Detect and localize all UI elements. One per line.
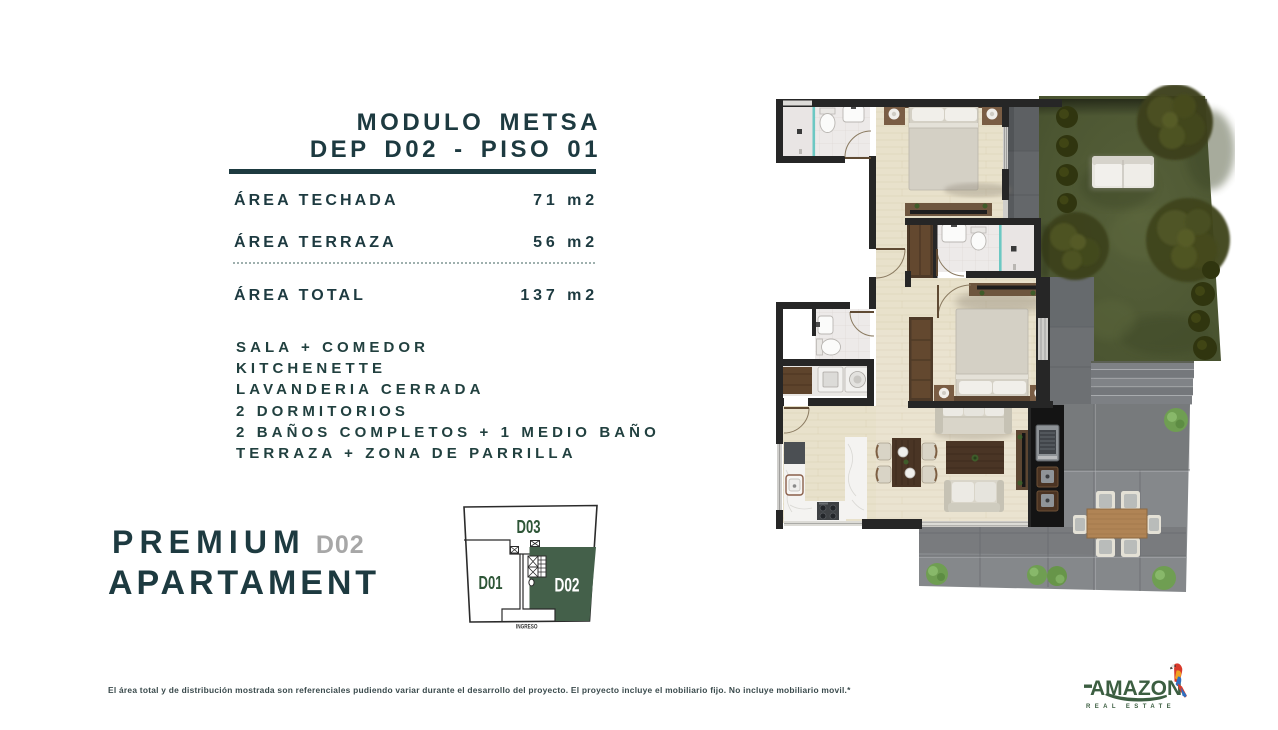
svg-text:D01: D01 bbox=[479, 573, 503, 593]
svg-text:INGRESO: INGRESO bbox=[516, 624, 538, 631]
svg-text:D03: D03 bbox=[517, 517, 541, 537]
svg-text:REAL ESTATE: REAL ESTATE bbox=[1086, 704, 1175, 710]
svg-text:AMAZON: AMAZON bbox=[1090, 677, 1182, 700]
svg-text:D02: D02 bbox=[555, 575, 580, 597]
